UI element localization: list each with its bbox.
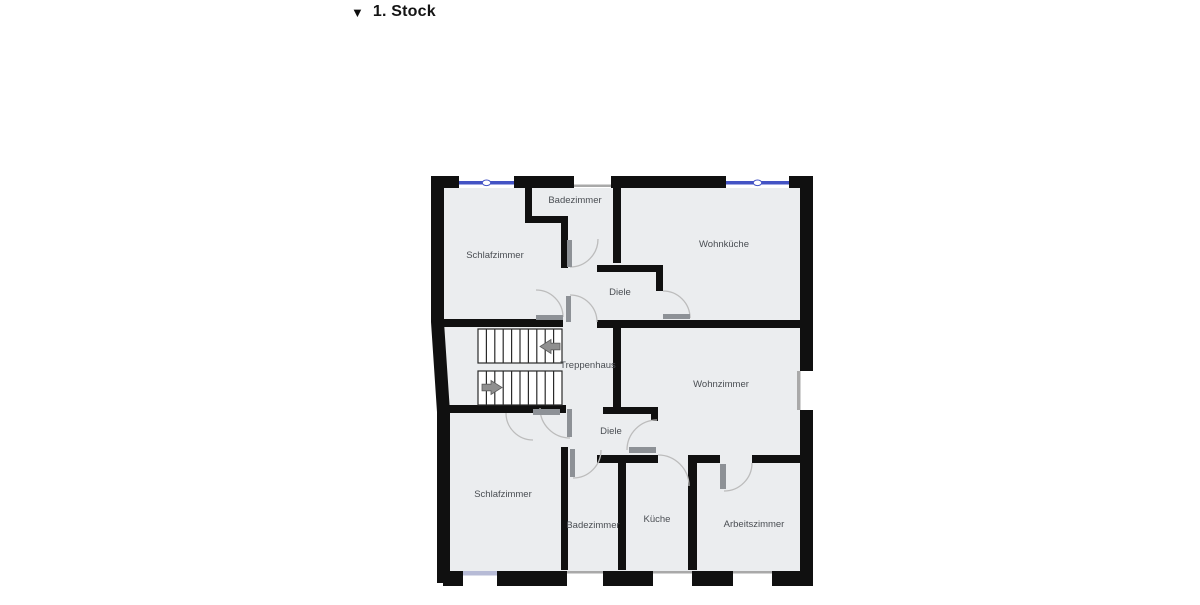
room-label-schlafzimmer-bottom: Schlafzimmer — [474, 489, 532, 500]
room-label-badezimmer-bottom: Badezimmer — [566, 520, 619, 531]
room-label-wohnzimmer: Wohnzimmer — [693, 379, 749, 390]
room-label-wohnkueche: Wohnküche — [699, 239, 749, 250]
room-label-badezimmer-top: Badezimmer — [548, 195, 601, 206]
room-label-kueche: Küche — [644, 514, 671, 525]
room-label-diele-bottom: Diele — [600, 426, 622, 437]
window-right-wall — [800, 371, 813, 410]
room-label-schlafzimmer-top: Schlafzimmer — [466, 250, 524, 261]
floorplan-canvas[interactable]: Badezimmer Schlafzimmer Wohnküche Diele … — [0, 0, 1200, 600]
room-label-treppenhaus: Treppenhaus — [560, 360, 616, 371]
room-label-arbeitszimmer: Arbeitszimmer — [724, 519, 785, 530]
room-label-diele-top: Diele — [609, 287, 631, 298]
